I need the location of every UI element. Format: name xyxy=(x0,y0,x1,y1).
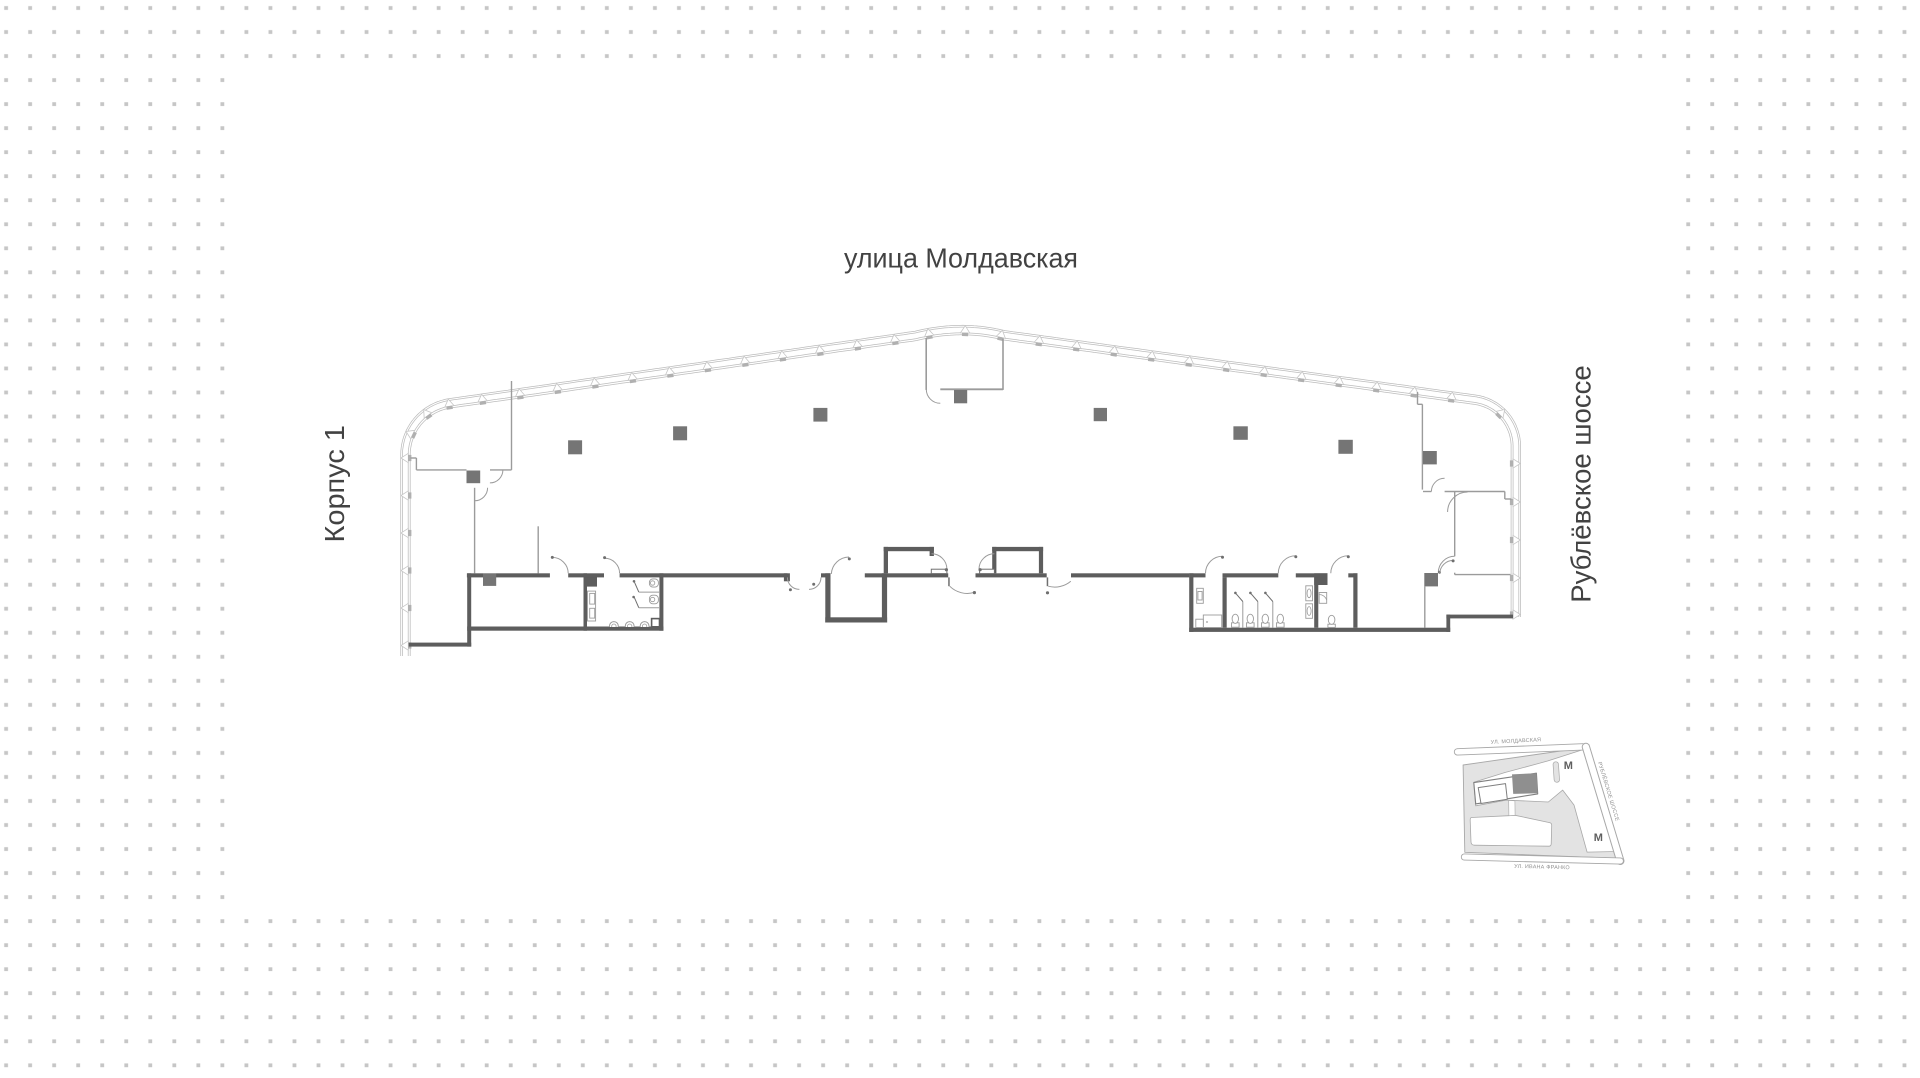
svg-text:улица Молдавская: улица Молдавская xyxy=(844,243,1078,274)
svg-text:М: М xyxy=(1594,832,1603,844)
svg-text:Корпус 1: Корпус 1 xyxy=(319,425,350,543)
svg-text:Рублёвское шоссе: Рублёвское шоссе xyxy=(1566,365,1597,603)
svg-text:М: М xyxy=(1564,760,1573,772)
